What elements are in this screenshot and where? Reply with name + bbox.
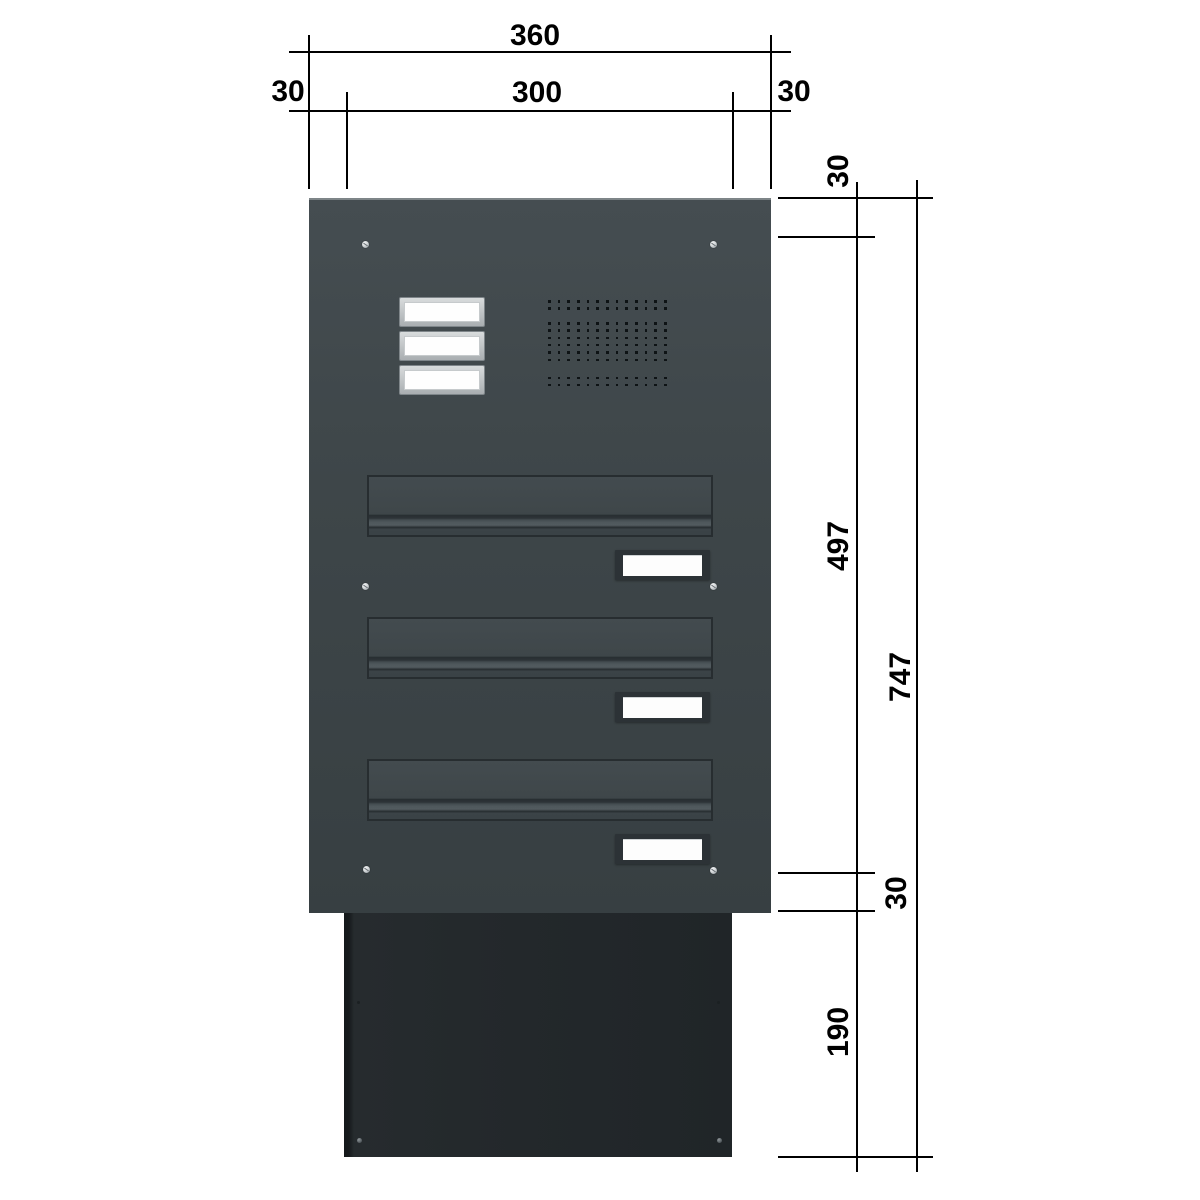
- speaker-dot: [664, 344, 667, 347]
- tick-panel-bottom: [778, 910, 875, 912]
- speaker-dot: [625, 344, 628, 347]
- speaker-dot: [548, 322, 551, 325]
- speaker-dot: [567, 377, 570, 380]
- speaker-dot: [664, 329, 667, 332]
- speaker-dot: [606, 344, 609, 347]
- speaker-dot: [577, 300, 580, 303]
- speaker-dot: [616, 307, 619, 310]
- speaker-dot: [577, 377, 580, 380]
- speaker-dot: [548, 344, 551, 347]
- speaker-dot: [548, 384, 551, 387]
- speaker-dot: [587, 351, 590, 354]
- speaker-dot: [645, 384, 648, 387]
- duct-screw-left: [357, 1138, 362, 1143]
- speaker-dot: [664, 337, 667, 340]
- ext-line-panel-right: [770, 35, 772, 189]
- speaker-dot: [587, 337, 590, 340]
- tick-panel-top: [778, 197, 933, 199]
- speaker-dot: [567, 307, 570, 310]
- tick-top-margin: [778, 236, 875, 238]
- speaker-dot: [587, 307, 590, 310]
- tick-body-bottom: [778, 872, 875, 874]
- speaker-dot: [616, 300, 619, 303]
- speaker-dot: [625, 351, 628, 354]
- speaker-dot: [635, 307, 638, 310]
- speaker-dot: [587, 384, 590, 387]
- speaker-dot: [567, 359, 570, 362]
- speaker-dot: [567, 344, 570, 347]
- speaker-dot: [587, 344, 590, 347]
- dim-line-segments-vertical: [856, 182, 858, 1172]
- speaker-dot: [596, 300, 599, 303]
- speaker-dot: [645, 344, 648, 347]
- speaker-dot: [577, 351, 580, 354]
- ext-line-inner-right: [732, 92, 734, 189]
- screw-top-left: [362, 241, 369, 248]
- speaker-dot: [606, 359, 609, 362]
- speaker-dot: [635, 351, 638, 354]
- mail-flap-1: [367, 475, 713, 537]
- dim-label-inner-width: 300: [512, 78, 562, 108]
- speaker-dot: [606, 329, 609, 332]
- dim-label-bottom-margin: 30: [882, 876, 912, 909]
- speaker-dot: [654, 377, 657, 380]
- speaker-dot: [645, 377, 648, 380]
- speaker-grille: [546, 297, 668, 389]
- speaker-dot: [654, 384, 657, 387]
- speaker-dot: [548, 307, 551, 310]
- screw-middle-left: [362, 583, 369, 590]
- speaker-dot: [664, 359, 667, 362]
- speaker-dot: [654, 344, 657, 347]
- dim-label-total-width: 360: [510, 21, 560, 51]
- speaker-dot: [558, 351, 561, 354]
- screw-bottom-right: [710, 867, 717, 874]
- bell-plate-3-window: [404, 370, 480, 390]
- ext-line-panel-left: [308, 35, 310, 189]
- speaker-dot: [616, 359, 619, 362]
- dim-line-inner-width: [289, 110, 791, 112]
- speaker-dot: [606, 322, 609, 325]
- name-plate-3-window: [623, 839, 702, 860]
- mail-flap-2: [367, 617, 713, 679]
- speaker-dot: [558, 307, 561, 310]
- speaker-dot: [664, 307, 667, 310]
- name-plate-3: [615, 834, 710, 864]
- speaker-dot: [596, 384, 599, 387]
- bell-plate-3: [399, 365, 485, 395]
- speaker-dot: [616, 344, 619, 347]
- speaker-dot: [616, 351, 619, 354]
- speaker-dot: [558, 337, 561, 340]
- dim-label-right-margin: 30: [777, 77, 810, 107]
- name-plate-1-window: [623, 555, 702, 576]
- speaker-dot: [635, 329, 638, 332]
- dim-label-duct-height: 190: [824, 1007, 854, 1057]
- speaker-dot: [548, 329, 551, 332]
- speaker-dot: [645, 337, 648, 340]
- speaker-dot: [567, 337, 570, 340]
- screw-middle-right: [710, 583, 717, 590]
- speaker-dot: [558, 300, 561, 303]
- speaker-dot: [587, 300, 590, 303]
- speaker-dot: [664, 322, 667, 325]
- speaker-dot: [625, 322, 628, 325]
- speaker-dot: [606, 384, 609, 387]
- speaker-dot: [587, 329, 590, 332]
- speaker-dot: [625, 359, 628, 362]
- speaker-dot: [558, 344, 561, 347]
- screw-bottom-left: [363, 866, 370, 873]
- speaker-dot: [606, 351, 609, 354]
- speaker-dot: [645, 329, 648, 332]
- screw-top-right: [710, 241, 717, 248]
- speaker-dot: [587, 377, 590, 380]
- mail-flap-3: [367, 759, 713, 821]
- speaker-dot: [596, 344, 599, 347]
- speaker-dot: [654, 329, 657, 332]
- dim-label-left-margin: 30: [271, 77, 304, 107]
- speaker-dot: [577, 307, 580, 310]
- bell-plate-1: [399, 297, 485, 327]
- speaker-dot: [625, 307, 628, 310]
- speaker-dot: [645, 300, 648, 303]
- speaker-dot: [577, 384, 580, 387]
- speaker-dot: [654, 307, 657, 310]
- speaker-dot: [654, 322, 657, 325]
- bell-plate-2-window: [404, 336, 480, 356]
- speaker-dot: [567, 329, 570, 332]
- speaker-dot: [587, 322, 590, 325]
- duct-mark-right: [717, 1001, 720, 1004]
- speaker-dot: [596, 359, 599, 362]
- speaker-dot: [596, 351, 599, 354]
- speaker-dot: [548, 377, 551, 380]
- speaker-dot: [596, 322, 599, 325]
- speaker-dot: [616, 329, 619, 332]
- dim-label-total-height: 747: [886, 652, 916, 702]
- speaker-dot: [567, 351, 570, 354]
- speaker-dot: [645, 307, 648, 310]
- speaker-dot: [654, 337, 657, 340]
- speaker-dot: [577, 344, 580, 347]
- bell-plate-2: [399, 331, 485, 361]
- speaker-dot: [645, 359, 648, 362]
- name-plate-2: [615, 692, 710, 722]
- speaker-dot: [635, 377, 638, 380]
- speaker-dot: [616, 337, 619, 340]
- speaker-dot: [635, 300, 638, 303]
- speaker-dot: [635, 359, 638, 362]
- speaker-dot: [577, 337, 580, 340]
- speaker-dot: [625, 337, 628, 340]
- speaker-dot: [548, 359, 551, 362]
- speaker-dot: [558, 329, 561, 332]
- speaker-dot: [654, 351, 657, 354]
- speaker-dot: [596, 307, 599, 310]
- speaker-dot: [577, 322, 580, 325]
- speaker-dot: [645, 322, 648, 325]
- speaker-dot: [596, 377, 599, 380]
- duct-mark-left: [357, 1001, 360, 1004]
- speaker-dot: [654, 300, 657, 303]
- speaker-dot: [635, 384, 638, 387]
- speaker-dot: [664, 377, 667, 380]
- wall-duct-box: [344, 911, 732, 1157]
- speaker-dot: [577, 359, 580, 362]
- speaker-dot: [635, 322, 638, 325]
- duct-screw-right: [717, 1138, 722, 1143]
- speaker-dot: [587, 359, 590, 362]
- speaker-dot: [664, 351, 667, 354]
- speaker-dot: [558, 359, 561, 362]
- speaker-dot: [635, 344, 638, 347]
- speaker-dot: [558, 384, 561, 387]
- name-plate-1: [615, 550, 710, 580]
- speaker-dot: [625, 300, 628, 303]
- front-panel: [309, 198, 771, 913]
- speaker-dot: [596, 337, 599, 340]
- speaker-dot: [606, 300, 609, 303]
- bell-plate-1-window: [404, 302, 480, 322]
- speaker-dot: [616, 384, 619, 387]
- speaker-dot: [577, 329, 580, 332]
- speaker-dot: [596, 329, 599, 332]
- speaker-dot: [625, 377, 628, 380]
- speaker-dot: [606, 337, 609, 340]
- speaker-dot: [616, 322, 619, 325]
- speaker-dot: [664, 300, 667, 303]
- speaker-dot: [548, 337, 551, 340]
- speaker-dot: [625, 384, 628, 387]
- dim-label-body-height: 497: [824, 521, 854, 571]
- tick-duct-bottom: [778, 1156, 933, 1158]
- ext-line-inner-left: [346, 92, 348, 189]
- speaker-dot: [606, 307, 609, 310]
- speaker-dot: [664, 384, 667, 387]
- speaker-dot: [548, 300, 551, 303]
- speaker-dot: [635, 337, 638, 340]
- speaker-dot: [567, 384, 570, 387]
- speaker-dot: [606, 377, 609, 380]
- drawing-canvas: 360 30 300 30 30 497 747 30 190: [0, 0, 1200, 1200]
- name-plate-2-window: [623, 697, 702, 718]
- speaker-dot: [645, 351, 648, 354]
- speaker-dot: [567, 322, 570, 325]
- speaker-dot: [654, 359, 657, 362]
- speaker-dot: [558, 322, 561, 325]
- speaker-dot: [548, 351, 551, 354]
- speaker-dot: [625, 329, 628, 332]
- dim-label-top-margin: 30: [824, 154, 854, 187]
- speaker-dot: [567, 300, 570, 303]
- speaker-dot: [616, 377, 619, 380]
- speaker-dot: [558, 377, 561, 380]
